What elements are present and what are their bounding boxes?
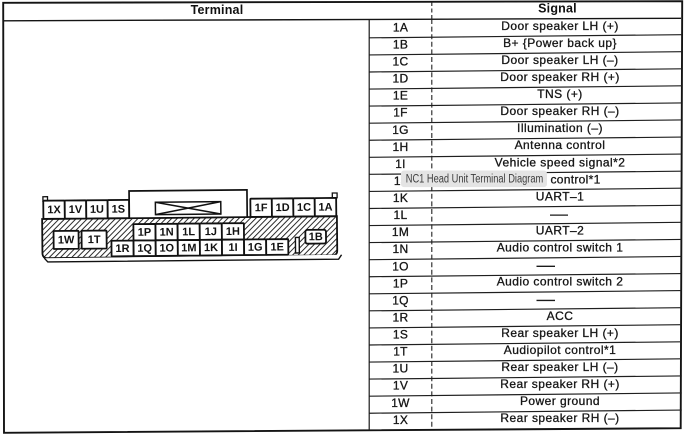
svg-text:Terminal: Terminal <box>191 3 244 17</box>
svg-text:Door speaker RH (+): Door speaker RH (+) <box>500 70 620 84</box>
svg-text:UART–1: UART–1 <box>536 189 585 203</box>
svg-text:Rear speaker RH (–): Rear speaker RH (–) <box>500 411 619 425</box>
svg-text:NC1 Head Unit Terminal Diagram: NC1 Head Unit Terminal Diagram <box>406 173 544 185</box>
svg-text:UART–2: UART–2 <box>536 224 585 238</box>
svg-text:1O: 1O <box>392 259 409 273</box>
svg-text:1G: 1G <box>248 242 263 254</box>
svg-text:1M: 1M <box>181 242 196 254</box>
svg-text:Rear speaker LH (+): Rear speaker LH (+) <box>501 326 619 340</box>
svg-text:TNS (+): TNS (+) <box>537 87 582 101</box>
svg-text:Signal: Signal <box>538 2 577 16</box>
svg-text:1N: 1N <box>393 242 409 256</box>
svg-text:1H: 1H <box>393 140 409 154</box>
svg-text:1U: 1U <box>90 204 104 216</box>
svg-text:1P: 1P <box>393 276 408 290</box>
svg-text:Door speaker LH (+): Door speaker LH (+) <box>501 19 619 33</box>
svg-text:1F: 1F <box>255 202 268 214</box>
svg-text:1J: 1J <box>205 226 217 238</box>
svg-text:1V: 1V <box>393 379 408 393</box>
svg-text:1Q: 1Q <box>137 243 152 255</box>
svg-text:1N: 1N <box>160 226 174 238</box>
svg-text:1V: 1V <box>69 204 83 216</box>
svg-text:1L: 1L <box>394 208 408 222</box>
svg-text:Audiopilot control*1: Audiopilot control*1 <box>504 343 616 357</box>
svg-text:1I: 1I <box>395 157 406 171</box>
svg-text:1B: 1B <box>309 231 323 243</box>
svg-text:B+ {Power back up}: B+ {Power back up} <box>503 36 617 50</box>
svg-text:1O: 1O <box>159 242 174 254</box>
svg-text:1A: 1A <box>393 20 408 34</box>
svg-text:Rear speaker LH (–): Rear speaker LH (–) <box>501 360 618 374</box>
svg-text:1K: 1K <box>204 242 218 254</box>
svg-text:1B: 1B <box>393 37 408 51</box>
svg-text:1C: 1C <box>393 55 409 69</box>
svg-text:Vehicle speed signal*2: Vehicle speed signal*2 <box>495 155 626 169</box>
svg-text:1F: 1F <box>393 106 408 120</box>
svg-text:1U: 1U <box>393 362 409 376</box>
svg-text:ACC: ACC <box>547 309 574 323</box>
svg-text:1E: 1E <box>270 241 284 253</box>
svg-text:1L: 1L <box>182 226 195 238</box>
svg-text:1I: 1I <box>228 242 237 254</box>
svg-text:1K: 1K <box>393 191 408 205</box>
svg-text:1H: 1H <box>226 226 240 238</box>
svg-text:Audio control switch 2: Audio control switch 2 <box>497 275 624 289</box>
svg-text:1E: 1E <box>393 89 408 103</box>
svg-text:1T: 1T <box>393 345 408 359</box>
svg-text:1X: 1X <box>393 413 408 427</box>
svg-text:1X: 1X <box>47 204 61 216</box>
svg-text:Door speaker RH (–): Door speaker RH (–) <box>500 104 619 118</box>
svg-text:1G: 1G <box>392 123 409 137</box>
svg-text:1M: 1M <box>392 225 409 239</box>
svg-text:1R: 1R <box>115 243 129 255</box>
svg-text:Power ground: Power ground <box>520 394 600 408</box>
svg-text:1T: 1T <box>88 234 101 246</box>
svg-text:Audio control switch 1: Audio control switch 1 <box>497 241 624 255</box>
svg-text:1R: 1R <box>393 310 409 324</box>
svg-text:1P: 1P <box>138 227 152 239</box>
svg-text:Rear speaker RH (+): Rear speaker RH (+) <box>500 377 620 391</box>
svg-text:1D: 1D <box>276 202 290 214</box>
svg-text:1S: 1S <box>112 204 126 216</box>
svg-text:1D: 1D <box>393 72 409 86</box>
svg-text:1W: 1W <box>58 234 75 246</box>
svg-text:1S: 1S <box>393 328 408 342</box>
svg-text:Antenna control: Antenna control <box>515 138 606 152</box>
svg-text:Door speaker LH (–): Door speaker LH (–) <box>501 53 618 67</box>
svg-text:1C: 1C <box>297 202 311 214</box>
svg-text:1W: 1W <box>391 396 410 410</box>
svg-text:1A: 1A <box>318 202 332 214</box>
svg-text:1Q: 1Q <box>392 293 409 307</box>
svg-text:control*1: control*1 <box>551 172 601 186</box>
svg-text:Illumination (–): Illumination (–) <box>517 121 603 135</box>
